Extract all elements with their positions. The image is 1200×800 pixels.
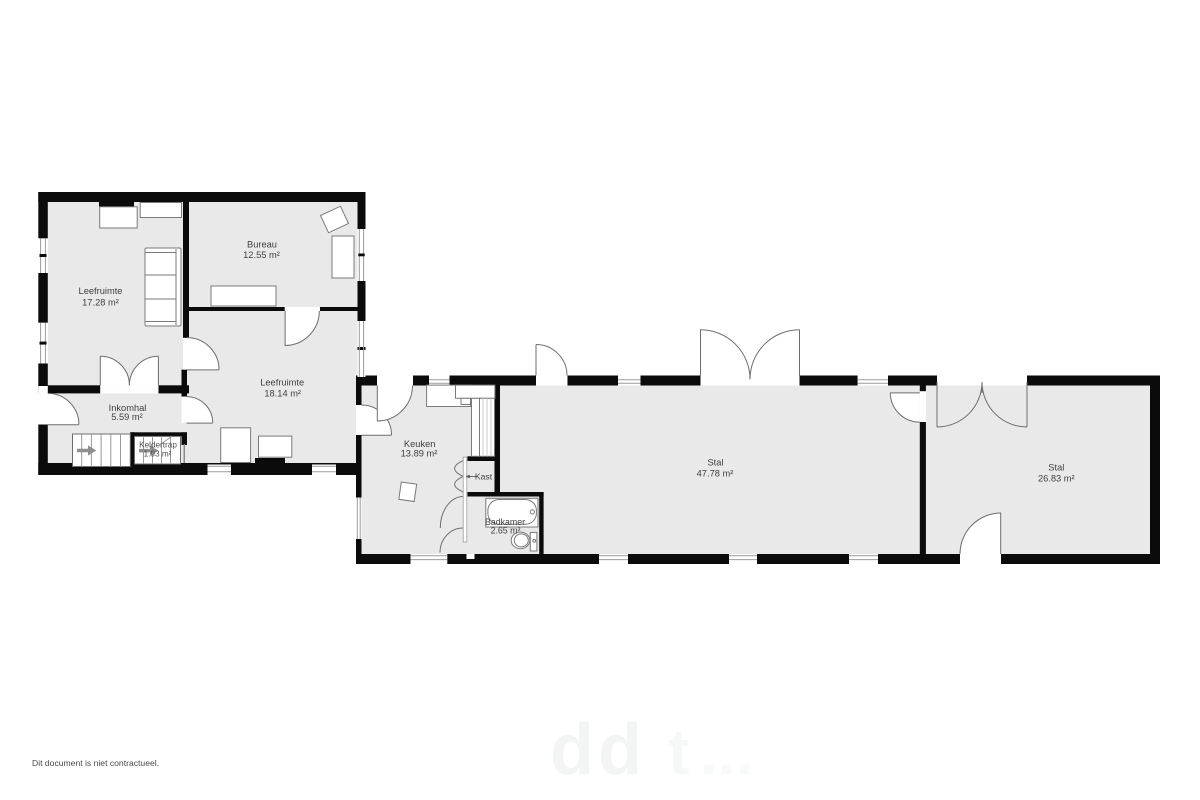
svg-text:47.78 m²: 47.78 m² (697, 469, 734, 479)
svg-text:Leefruimte: Leefruimte (260, 378, 304, 388)
svg-text:Bureau: Bureau (247, 240, 277, 250)
svg-text:Leefruimte: Leefruimte (79, 286, 123, 296)
svg-text:...: ... (700, 716, 753, 788)
svg-text:18.14 m²: 18.14 m² (264, 389, 301, 399)
svg-text:13.89 m²: 13.89 m² (401, 449, 438, 459)
svg-text:Stal: Stal (1048, 463, 1064, 473)
svg-text:Keuken: Keuken (404, 439, 436, 449)
svg-text:17.28 m²: 17.28 m² (82, 298, 119, 308)
svg-text:Keldertrap: Keldertrap (139, 441, 177, 450)
svg-text:1.93 m²: 1.93 m² (144, 450, 172, 459)
svg-text:t: t (668, 716, 689, 788)
svg-text:2.65 m²: 2.65 m² (491, 526, 521, 536)
svg-text:12.55 m²: 12.55 m² (243, 250, 280, 260)
svg-text:Kast: Kast (475, 472, 493, 482)
svg-text:5.59 m²: 5.59 m² (111, 412, 143, 422)
svg-text:Dit document is niet contractu: Dit document is niet contractueel. (32, 758, 159, 768)
svg-text:Stal: Stal (707, 458, 723, 468)
svg-text:dd: dd (550, 710, 646, 790)
svg-text:26.83 m²: 26.83 m² (1038, 474, 1075, 484)
